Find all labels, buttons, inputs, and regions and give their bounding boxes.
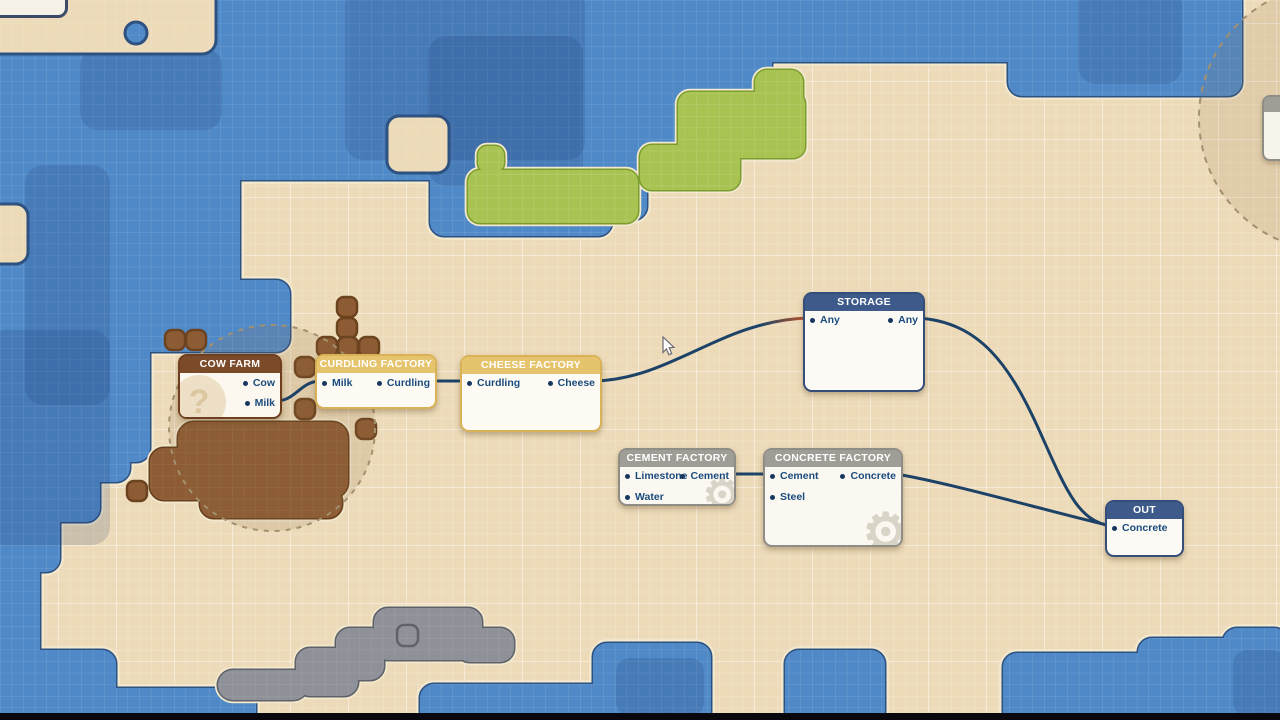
port-label: Milk	[255, 397, 275, 409]
port-dot-icon[interactable]	[625, 474, 630, 479]
port-label: Cow	[253, 377, 275, 389]
port-in-concrete-factory-cement[interactable]: Cement	[770, 468, 819, 484]
port-dot-icon[interactable]	[810, 318, 815, 323]
port-out-cheese-factory-cheese[interactable]: Cheese	[548, 375, 595, 391]
port-dot-icon[interactable]	[548, 381, 553, 386]
port-dot-icon[interactable]	[245, 401, 250, 406]
node-concrete-factory[interactable]: CONCRETE FACTORY⚙CementSteelConcrete	[763, 448, 903, 547]
port-dot-icon[interactable]	[467, 381, 472, 386]
port-in-out-concrete[interactable]: Concrete	[1112, 520, 1168, 536]
port-in-cheese-factory-curdling[interactable]: Curdling	[467, 375, 520, 391]
offscreen-node-right[interactable]	[1262, 95, 1280, 161]
port-label: Curdling	[477, 377, 520, 389]
port-dot-icon[interactable]	[625, 495, 630, 500]
port-out-curdling-factory-curdling[interactable]: Curdling	[377, 375, 430, 391]
node-title-out: OUT	[1107, 502, 1182, 519]
node-curdling-factory[interactable]: CURDLING FACTORYMilkCurdling	[315, 354, 437, 409]
letterbox-bar	[0, 713, 1280, 720]
node-title-concrete-factory: CONCRETE FACTORY	[765, 450, 901, 467]
port-in-cement-factory-limestone[interactable]: Limestone	[625, 468, 688, 484]
question-mark-icon: ?	[180, 375, 226, 417]
port-dot-icon[interactable]	[680, 474, 685, 479]
gear-icon: ⚙	[862, 507, 901, 545]
port-label: Cement	[690, 470, 729, 482]
port-out-concrete-factory-concrete[interactable]: Concrete	[840, 468, 896, 484]
node-cow-farm[interactable]: COW FARM?CowMilk	[178, 354, 282, 419]
port-label: Cheese	[558, 377, 595, 389]
node-title-cement-factory: CEMENT FACTORY	[620, 450, 734, 467]
node-cement-factory[interactable]: CEMENT FACTORY⚙LimestoneWaterCement	[618, 448, 736, 506]
node-storage[interactable]: STORAGEAnyAny	[803, 292, 925, 392]
port-out-storage-any[interactable]: Any	[888, 312, 918, 328]
port-in-concrete-factory-steel[interactable]: Steel	[770, 489, 805, 505]
port-dot-icon[interactable]	[770, 474, 775, 479]
port-label: Cement	[780, 470, 819, 482]
port-label: Any	[820, 314, 840, 326]
offscreen-node-right-header	[1264, 97, 1280, 112]
port-dot-icon[interactable]	[888, 318, 893, 323]
port-label: Concrete	[1122, 522, 1168, 534]
port-in-storage-any[interactable]: Any	[810, 312, 840, 328]
port-out-cow-farm-milk[interactable]: Milk	[245, 395, 275, 411]
offscreen-node-top-left[interactable]	[0, 0, 68, 18]
port-label: Steel	[780, 491, 805, 503]
game-viewport[interactable]: COW FARM?CowMilkCURDLING FACTORYMilkCurd…	[0, 0, 1280, 720]
port-in-cement-factory-water[interactable]: Water	[625, 489, 664, 505]
port-dot-icon[interactable]	[243, 381, 248, 386]
node-title-storage: STORAGE	[805, 294, 923, 311]
node-out[interactable]: OUTConcrete	[1105, 500, 1184, 557]
port-label: Curdling	[387, 377, 430, 389]
node-cheese-factory[interactable]: CHEESE FACTORYCurdlingCheese	[460, 355, 602, 432]
nodes-layer: COW FARM?CowMilkCURDLING FACTORYMilkCurd…	[0, 0, 1280, 720]
port-out-cement-factory-cement[interactable]: Cement	[680, 468, 729, 484]
node-title-curdling-factory: CURDLING FACTORY	[317, 356, 435, 373]
node-title-cheese-factory: CHEESE FACTORY	[462, 357, 600, 374]
port-label: Concrete	[850, 470, 896, 482]
port-label: Any	[898, 314, 918, 326]
port-dot-icon[interactable]	[770, 495, 775, 500]
port-dot-icon[interactable]	[1112, 526, 1117, 531]
port-label: Water	[635, 491, 664, 503]
port-out-cow-farm-cow[interactable]: Cow	[243, 375, 275, 391]
port-dot-icon[interactable]	[377, 381, 382, 386]
port-dot-icon[interactable]	[322, 381, 327, 386]
port-label: Milk	[332, 377, 352, 389]
port-in-curdling-factory-milk[interactable]: Milk	[322, 375, 352, 391]
port-dot-icon[interactable]	[840, 474, 845, 479]
node-title-cow-farm: COW FARM	[180, 356, 280, 373]
